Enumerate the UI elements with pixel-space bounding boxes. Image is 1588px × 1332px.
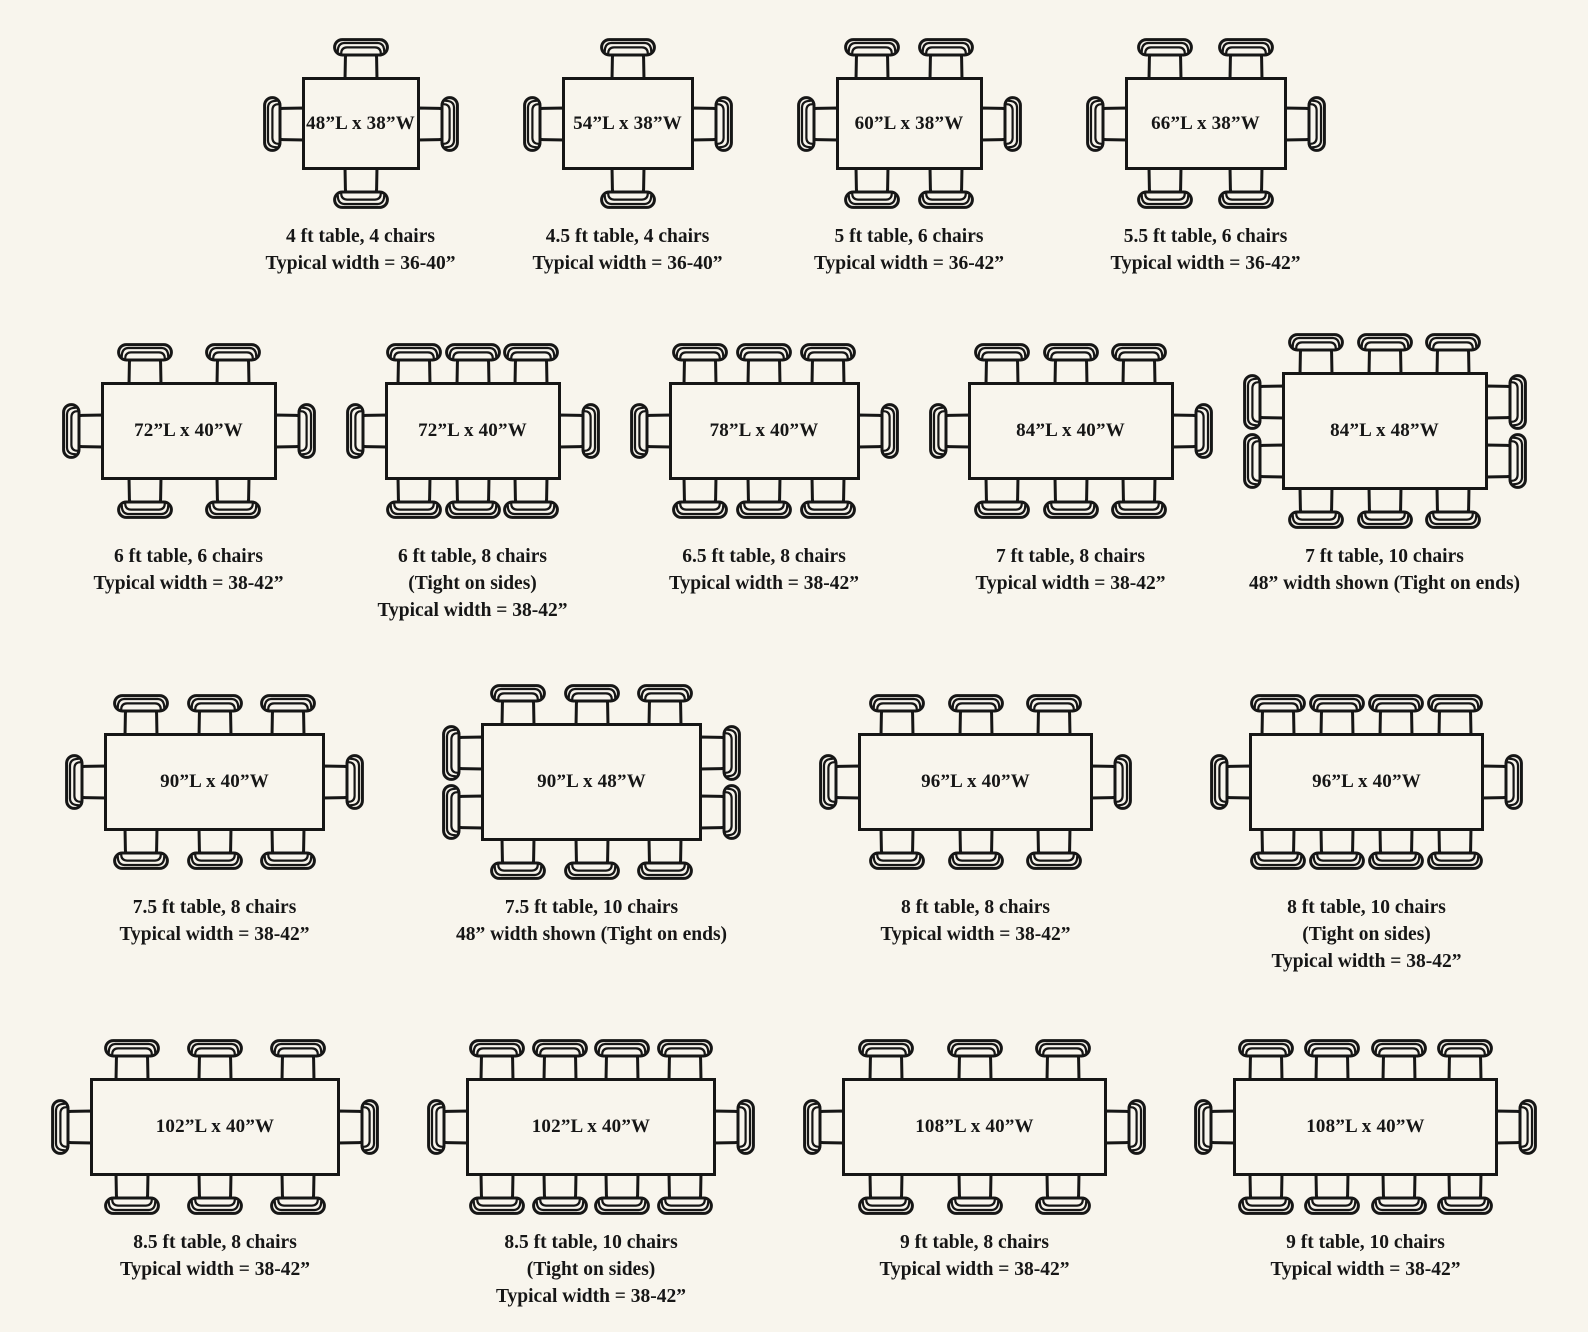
chair-icon: [1304, 1039, 1360, 1081]
table-diagram: 84”L x 48”W: [1243, 333, 1527, 529]
table-figure: 96”L x 40”W8 ft table, 10 chairs(Tight o…: [1210, 684, 1523, 975]
chair-icon: [803, 1099, 845, 1155]
chair-icon: [1086, 96, 1128, 152]
table-top: 84”L x 48”W: [1282, 372, 1488, 490]
table-dimensions-label: 102”L x 40”W: [532, 1116, 651, 1138]
chair-icon: [929, 403, 971, 459]
figure-caption-line: 7 ft table, 10 chairs: [1249, 543, 1520, 570]
chair-icon: [274, 403, 316, 459]
figure-caption-line: 6 ft table, 6 chairs: [93, 543, 283, 570]
figure-grid: 48”L x 38”W4 ft table, 4 chairsTypical w…: [0, 0, 1588, 1310]
chair-icon: [797, 96, 839, 152]
chair-icon: [1371, 1173, 1427, 1215]
chair-icon: [104, 1039, 160, 1081]
chair-icon: [442, 725, 484, 781]
chair-icon: [657, 1039, 713, 1081]
figure-caption-line: 4 ft table, 4 chairs: [265, 223, 455, 250]
chair-icon: [1218, 38, 1274, 80]
chair-icon: [1137, 38, 1193, 80]
figure-caption-line: 5 ft table, 6 chairs: [814, 223, 1004, 250]
diagram-slot: 78”L x 40”W: [630, 333, 899, 529]
chair-icon: [532, 1039, 588, 1081]
figure-caption: 7 ft table, 8 chairsTypical width = 38-4…: [975, 543, 1165, 597]
chair-icon: [442, 784, 484, 840]
table-figure: 72”L x 40”W6 ft table, 8 chairs(Tight on…: [346, 333, 600, 624]
chair-icon: [1111, 477, 1167, 519]
chair-icon: [974, 477, 1030, 519]
table-diagram: 96”L x 40”W: [819, 694, 1132, 870]
table-top: 48”L x 38”W: [302, 77, 420, 170]
table-top: 102”L x 40”W: [466, 1078, 716, 1176]
chair-icon: [1210, 754, 1252, 810]
figure-caption-line: 7.5 ft table, 10 chairs: [456, 894, 727, 921]
chair-icon: [333, 167, 389, 209]
chair-icon: [1304, 1173, 1360, 1215]
figure-caption-line: Typical width = 38-42”: [975, 570, 1165, 597]
chair-icon: [948, 828, 1004, 870]
diagram-slot: 102”L x 40”W: [51, 1039, 379, 1215]
figure-caption: 4.5 ft table, 4 chairsTypical width = 36…: [532, 223, 722, 277]
figure-caption-line: 6.5 ft table, 8 chairs: [669, 543, 859, 570]
chair-icon: [1485, 374, 1527, 430]
chair-icon: [1194, 1099, 1236, 1155]
diagram-slot: 96”L x 40”W: [819, 684, 1132, 880]
table-diagram: 102”L x 40”W: [51, 1039, 379, 1215]
chair-icon: [386, 477, 442, 519]
diagram-slot: 54”L x 38”W: [523, 38, 733, 209]
chair-icon: [736, 343, 792, 385]
diagram-slot: 108”L x 40”W: [1194, 1039, 1537, 1215]
table-top: 60”L x 38”W: [836, 77, 983, 170]
figure-caption: 7 ft table, 10 chairs48” width shown (Ti…: [1249, 543, 1520, 597]
table-dimensions-label: 102”L x 40”W: [156, 1116, 275, 1138]
chair-icon: [800, 343, 856, 385]
diagram-slot: 66”L x 38”W: [1086, 38, 1326, 209]
figure-caption-line: Typical width = 38-42”: [880, 921, 1070, 948]
figure-row: 48”L x 38”W4 ft table, 4 chairsTypical w…: [0, 38, 1588, 277]
table-dimensions-label: 90”L x 48”W: [537, 771, 646, 793]
chair-icon: [1357, 333, 1413, 375]
chair-icon: [1171, 403, 1213, 459]
diagram-slot: 90”L x 48”W: [442, 684, 741, 880]
chair-icon: [1425, 333, 1481, 375]
chair-icon: [1243, 433, 1285, 489]
table-figure: 60”L x 38”W5 ft table, 6 chairsTypical w…: [797, 38, 1022, 277]
chair-icon: [947, 1039, 1003, 1081]
chair-icon: [205, 343, 261, 385]
figure-caption-line: Typical width = 38-42”: [496, 1283, 686, 1310]
figure-caption-line: Typical width = 36-40”: [265, 250, 455, 277]
diagram-slot: 84”L x 40”W: [929, 333, 1213, 529]
figure-caption-line: Typical width = 38-42”: [120, 1256, 310, 1283]
figure-caption-line: 4.5 ft table, 4 chairs: [532, 223, 722, 250]
figure-caption-line: 9 ft table, 8 chairs: [879, 1229, 1069, 1256]
chair-icon: [187, 694, 243, 736]
figure-caption: 8 ft table, 10 chairs(Tight on sides)Typ…: [1271, 894, 1461, 975]
chair-icon: [1427, 828, 1483, 870]
chair-icon: [1371, 1039, 1427, 1081]
chair-icon: [523, 96, 565, 152]
table-dimensions-label: 72”L x 40”W: [418, 420, 527, 442]
chair-icon: [1250, 694, 1306, 736]
figure-caption-line: (Tight on sides): [1271, 921, 1461, 948]
figure-caption-line: 8.5 ft table, 8 chairs: [120, 1229, 310, 1256]
chair-icon: [869, 694, 925, 736]
chair-icon: [869, 828, 925, 870]
figure-caption-line: 5.5 ft table, 6 chairs: [1110, 223, 1300, 250]
table-dimensions-label: 108”L x 40”W: [1306, 1116, 1425, 1138]
table-diagram: 66”L x 38”W: [1086, 38, 1326, 209]
table-top: 96”L x 40”W: [1249, 733, 1484, 831]
diagram-slot: 60”L x 38”W: [797, 38, 1022, 209]
chair-icon: [1104, 1099, 1146, 1155]
chair-icon: [113, 828, 169, 870]
chair-icon: [1288, 333, 1344, 375]
chair-icon: [205, 477, 261, 519]
chair-icon: [1218, 167, 1274, 209]
table-figure: 102”L x 40”W8.5 ft table, 10 chairs(Tigh…: [427, 1039, 755, 1310]
chair-icon: [187, 828, 243, 870]
figure-caption-line: (Tight on sides): [377, 570, 567, 597]
figure-caption-line: Typical width = 38-42”: [669, 570, 859, 597]
table-figure: 90”L x 40”W7.5 ft table, 8 chairsTypical…: [65, 684, 364, 948]
chair-icon: [1368, 828, 1424, 870]
table-top: 54”L x 38”W: [562, 77, 694, 170]
chair-icon: [948, 694, 1004, 736]
chair-icon: [1357, 487, 1413, 529]
figure-caption: 8.5 ft table, 8 chairsTypical width = 38…: [120, 1229, 310, 1283]
chair-icon: [104, 1173, 160, 1215]
table-diagram: 72”L x 40”W: [346, 343, 600, 519]
chair-icon: [637, 684, 693, 726]
figure-caption-line: Typical width = 36-40”: [532, 250, 722, 277]
table-figure: 96”L x 40”W8 ft table, 8 chairsTypical w…: [819, 684, 1132, 948]
figure-caption: 9 ft table, 8 chairsTypical width = 38-4…: [879, 1229, 1069, 1283]
table-diagram: 72”L x 40”W: [62, 343, 316, 519]
chair-icon: [974, 343, 1030, 385]
chair-icon: [532, 1173, 588, 1215]
chair-icon: [980, 96, 1022, 152]
chair-icon: [1485, 433, 1527, 489]
table-dimensions-label: 84”L x 48”W: [1330, 420, 1439, 442]
chair-icon: [1043, 343, 1099, 385]
figure-caption: 5 ft table, 6 chairsTypical width = 36-4…: [814, 223, 1004, 277]
chair-icon: [1238, 1039, 1294, 1081]
figure-caption: 8.5 ft table, 10 chairs(Tight on sides)T…: [496, 1229, 686, 1310]
figure-caption-line: Typical width = 38-42”: [119, 921, 309, 948]
chair-icon: [699, 725, 741, 781]
table-top: 108”L x 40”W: [842, 1078, 1107, 1176]
chair-icon: [1035, 1039, 1091, 1081]
chair-icon: [1284, 96, 1326, 152]
table-diagram: 54”L x 38”W: [523, 38, 733, 209]
chair-icon: [1238, 1173, 1294, 1215]
table-figure: 108”L x 40”W9 ft table, 8 chairsTypical …: [803, 1039, 1146, 1283]
chair-icon: [1437, 1173, 1493, 1215]
chair-icon: [1427, 694, 1483, 736]
chair-icon: [263, 96, 305, 152]
figure-caption-line: (Tight on sides): [496, 1256, 686, 1283]
chair-icon: [117, 343, 173, 385]
table-diagram: 102”L x 40”W: [427, 1039, 755, 1215]
table-diagram: 60”L x 38”W: [797, 38, 1022, 209]
table-dimensions-label: 78”L x 40”W: [710, 420, 819, 442]
figure-caption-line: 8.5 ft table, 10 chairs: [496, 1229, 686, 1256]
figure-caption: 9 ft table, 10 chairsTypical width = 38-…: [1270, 1229, 1460, 1283]
table-figure: 84”L x 48”W7 ft table, 10 chairs48” widt…: [1243, 333, 1527, 597]
chair-icon: [1425, 487, 1481, 529]
table-dimensions-label: 96”L x 40”W: [1312, 771, 1421, 793]
chair-icon: [1243, 374, 1285, 430]
chair-icon: [1368, 694, 1424, 736]
chair-icon: [844, 167, 900, 209]
table-diagram: 108”L x 40”W: [1194, 1039, 1537, 1215]
chair-icon: [594, 1173, 650, 1215]
chair-icon: [1026, 828, 1082, 870]
chair-icon: [469, 1039, 525, 1081]
chair-icon: [427, 1099, 469, 1155]
chair-icon: [1026, 694, 1082, 736]
chair-icon: [672, 477, 728, 519]
chair-icon: [691, 96, 733, 152]
chair-icon: [918, 167, 974, 209]
figure-caption-line: 7.5 ft table, 8 chairs: [119, 894, 309, 921]
chair-icon: [260, 828, 316, 870]
chair-icon: [187, 1173, 243, 1215]
chair-icon: [594, 1039, 650, 1081]
diagram-slot: 72”L x 40”W: [346, 333, 600, 529]
figure-row: 102”L x 40”W8.5 ft table, 8 chairsTypica…: [0, 1039, 1588, 1310]
table-diagram: 90”L x 40”W: [65, 694, 364, 870]
table-top: 78”L x 40”W: [669, 382, 860, 480]
table-top: 72”L x 40”W: [101, 382, 277, 480]
chair-icon: [62, 403, 104, 459]
table-diagram: 84”L x 40”W: [929, 343, 1213, 519]
table-diagram: 90”L x 48”W: [442, 684, 741, 880]
chair-icon: [503, 477, 559, 519]
chair-icon: [322, 754, 364, 810]
chair-icon: [1309, 694, 1365, 736]
chair-icon: [630, 403, 672, 459]
diagram-slot: 102”L x 40”W: [427, 1039, 755, 1215]
table-figure: 102”L x 40”W8.5 ft table, 8 chairsTypica…: [51, 1039, 379, 1283]
chair-icon: [386, 343, 442, 385]
chair-icon: [637, 838, 693, 880]
table-dimensions-label: 96”L x 40”W: [921, 771, 1030, 793]
figure-caption: 7.5 ft table, 8 chairsTypical width = 38…: [119, 894, 309, 948]
chair-icon: [564, 684, 620, 726]
chair-icon: [844, 38, 900, 80]
chair-icon: [600, 38, 656, 80]
figure-caption-line: Typical width = 36-42”: [1110, 250, 1300, 277]
table-dimensions-label: 108”L x 40”W: [915, 1116, 1034, 1138]
table-diagram: 96”L x 40”W: [1210, 694, 1523, 870]
figure-caption-line: Typical width = 38-42”: [879, 1256, 1069, 1283]
chair-icon: [490, 838, 546, 880]
table-dimensions-label: 84”L x 40”W: [1016, 420, 1125, 442]
figure-row: 72”L x 40”W6 ft table, 6 chairsTypical w…: [0, 333, 1588, 624]
chair-icon: [469, 1173, 525, 1215]
chair-icon: [657, 1173, 713, 1215]
chair-icon: [857, 403, 899, 459]
figure-caption-line: Typical width = 38-42”: [1270, 1256, 1460, 1283]
table-figure: 90”L x 48”W7.5 ft table, 10 chairs48” wi…: [442, 684, 741, 948]
table-dimensions-label: 54”L x 38”W: [573, 113, 682, 135]
chair-icon: [918, 38, 974, 80]
figure-caption: 6 ft table, 8 chairs(Tight on sides)Typi…: [377, 543, 567, 624]
chair-icon: [113, 694, 169, 736]
chair-icon: [117, 477, 173, 519]
table-diagram: 108”L x 40”W: [803, 1039, 1146, 1215]
chair-icon: [1481, 754, 1523, 810]
chair-icon: [270, 1173, 326, 1215]
table-top: 96”L x 40”W: [858, 733, 1093, 831]
table-figure: 72”L x 40”W6 ft table, 6 chairsTypical w…: [62, 333, 316, 597]
chair-icon: [672, 343, 728, 385]
figure-caption-line: 8 ft table, 8 chairs: [880, 894, 1070, 921]
chair-icon: [819, 754, 861, 810]
figure-caption-line: 48” width shown (Tight on ends): [1249, 570, 1520, 597]
figure-caption-line: 8 ft table, 10 chairs: [1271, 894, 1461, 921]
chair-icon: [564, 838, 620, 880]
diagram-slot: 48”L x 38”W: [263, 38, 459, 209]
table-figure: 54”L x 38”W4.5 ft table, 4 chairsTypical…: [523, 38, 733, 277]
diagram-slot: 108”L x 40”W: [803, 1039, 1146, 1215]
figure-caption-line: Typical width = 38-42”: [1271, 948, 1461, 975]
chair-icon: [445, 477, 501, 519]
table-top: 84”L x 40”W: [968, 382, 1174, 480]
chair-icon: [346, 403, 388, 459]
chair-icon: [51, 1099, 93, 1155]
figure-caption: 8 ft table, 8 chairsTypical width = 38-4…: [880, 894, 1070, 948]
table-dimensions-label: 72”L x 40”W: [134, 420, 243, 442]
chair-icon: [1090, 754, 1132, 810]
table-diagram: 48”L x 38”W: [263, 38, 459, 209]
diagram-slot: 72”L x 40”W: [62, 333, 316, 529]
table-figure: 84”L x 40”W7 ft table, 8 chairsTypical w…: [929, 333, 1213, 597]
figure-caption-line: 9 ft table, 10 chairs: [1270, 1229, 1460, 1256]
table-figure: 66”L x 38”W5.5 ft table, 6 chairsTypical…: [1086, 38, 1326, 277]
figure-caption-line: 6 ft table, 8 chairs: [377, 543, 567, 570]
figure-caption-line: Typical width = 36-42”: [814, 250, 1004, 277]
chair-icon: [1035, 1173, 1091, 1215]
table-figure: 48”L x 38”W4 ft table, 4 chairsTypical w…: [263, 38, 459, 277]
chair-icon: [699, 784, 741, 840]
figure-caption: 4 ft table, 4 chairsTypical width = 36-4…: [265, 223, 455, 277]
chair-icon: [858, 1173, 914, 1215]
chair-icon: [270, 1039, 326, 1081]
table-dimensions-label: 66”L x 38”W: [1151, 113, 1260, 135]
chair-icon: [600, 167, 656, 209]
table-top: 90”L x 40”W: [104, 733, 325, 831]
table-dimensions-label: 48”L x 38”W: [306, 113, 415, 135]
chair-icon: [333, 38, 389, 80]
chair-icon: [1309, 828, 1365, 870]
chair-icon: [713, 1099, 755, 1155]
chair-icon: [1043, 477, 1099, 519]
chair-icon: [1437, 1039, 1493, 1081]
chair-icon: [1495, 1099, 1537, 1155]
table-top: 102”L x 40”W: [90, 1078, 340, 1176]
table-diagram: 78”L x 40”W: [630, 343, 899, 519]
diagram-slot: 96”L x 40”W: [1210, 684, 1523, 880]
figure-caption-line: Typical width = 38-42”: [377, 597, 567, 624]
chair-icon: [858, 1039, 914, 1081]
chair-icon: [65, 754, 107, 810]
chair-icon: [947, 1173, 1003, 1215]
chair-icon: [1250, 828, 1306, 870]
chair-icon: [1111, 343, 1167, 385]
figure-row: 90”L x 40”W7.5 ft table, 8 chairsTypical…: [0, 684, 1588, 975]
chair-icon: [187, 1039, 243, 1081]
diagram-slot: 84”L x 48”W: [1243, 333, 1527, 529]
table-top: 90”L x 48”W: [481, 723, 702, 841]
table-top: 72”L x 40”W: [385, 382, 561, 480]
figure-caption-line: Typical width = 38-42”: [93, 570, 283, 597]
chair-icon: [490, 684, 546, 726]
chair-icon: [445, 343, 501, 385]
figure-caption: 6 ft table, 6 chairsTypical width = 38-4…: [93, 543, 283, 597]
table-dimensions-label: 60”L x 38”W: [855, 113, 964, 135]
table-top: 108”L x 40”W: [1233, 1078, 1498, 1176]
chair-icon: [736, 477, 792, 519]
table-top: 66”L x 38”W: [1125, 77, 1287, 170]
diagram-slot: 90”L x 40”W: [65, 684, 364, 880]
figure-caption-line: 48” width shown (Tight on ends): [456, 921, 727, 948]
chair-icon: [417, 96, 459, 152]
figure-caption: 5.5 ft table, 6 chairsTypical width = 36…: [1110, 223, 1300, 277]
table-figure: 108”L x 40”W9 ft table, 10 chairsTypical…: [1194, 1039, 1537, 1283]
figure-caption-line: 7 ft table, 8 chairs: [975, 543, 1165, 570]
chair-icon: [1288, 487, 1344, 529]
table-dimensions-label: 90”L x 40”W: [160, 771, 269, 793]
figure-caption: 6.5 ft table, 8 chairsTypical width = 38…: [669, 543, 859, 597]
chair-icon: [503, 343, 559, 385]
chair-icon: [1137, 167, 1193, 209]
table-figure: 78”L x 40”W6.5 ft table, 8 chairsTypical…: [630, 333, 899, 597]
chair-icon: [337, 1099, 379, 1155]
chair-icon: [800, 477, 856, 519]
chair-icon: [260, 694, 316, 736]
chair-icon: [558, 403, 600, 459]
figure-caption: 7.5 ft table, 10 chairs48” width shown (…: [456, 894, 727, 948]
